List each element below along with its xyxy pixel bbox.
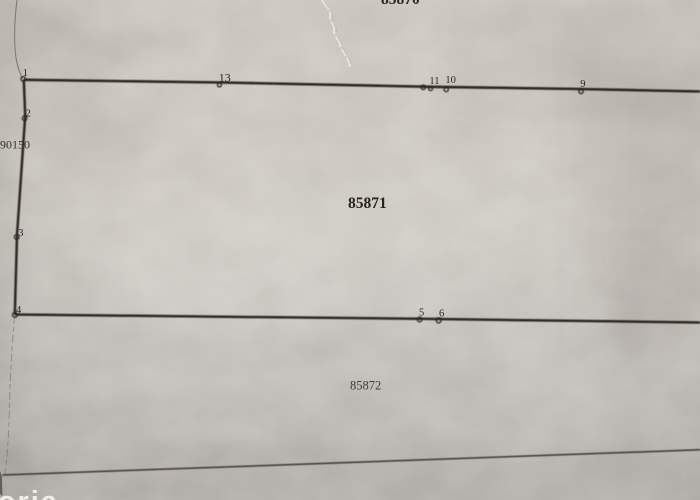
svg-text:11: 11 xyxy=(429,76,439,87)
svg-text:3: 3 xyxy=(18,228,23,239)
svg-text:10: 10 xyxy=(445,75,456,86)
svg-text:2: 2 xyxy=(26,109,31,120)
svg-text:9: 9 xyxy=(580,79,585,90)
svg-text:85872: 85872 xyxy=(350,379,381,393)
svg-text:90150: 90150 xyxy=(0,138,30,152)
svg-text:13: 13 xyxy=(219,70,231,84)
svg-text:4: 4 xyxy=(16,305,22,316)
svg-text:6: 6 xyxy=(439,309,444,320)
svg-text:5: 5 xyxy=(419,307,424,318)
svg-text:85871: 85871 xyxy=(348,195,387,212)
svg-text:85870: 85870 xyxy=(381,0,420,8)
svg-text:1: 1 xyxy=(23,68,28,79)
svg-text:storia: storia xyxy=(0,486,59,500)
